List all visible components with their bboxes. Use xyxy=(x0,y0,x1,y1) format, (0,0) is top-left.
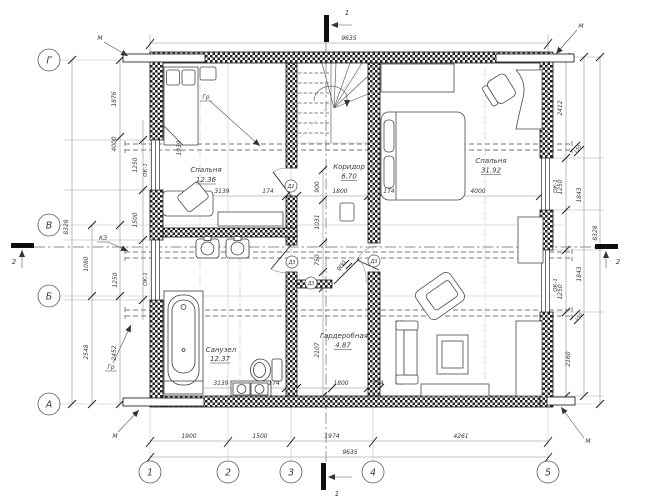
axis-col-5: 5 xyxy=(545,468,551,479)
washer-drum xyxy=(255,385,264,394)
floor-mark: Гр xyxy=(202,94,209,101)
dim-right-mid2: 1843 xyxy=(576,266,583,281)
rug-inner xyxy=(442,341,463,368)
room-name-bedroom-small: Спальня xyxy=(190,166,221,174)
axis-row-v: В xyxy=(46,221,53,232)
room-area-bedroom-small: 12.36 xyxy=(196,176,217,184)
room-area-wardrobe: 4.87 xyxy=(335,342,351,350)
dim-right-duct: 150 xyxy=(574,312,584,323)
dresser xyxy=(518,217,543,263)
dim-right-bottom: 2160 xyxy=(565,351,572,366)
dim-right-mid1: 1843 xyxy=(576,187,583,202)
dim-corridor-v3: 750 xyxy=(314,254,321,266)
axis-col-2: 2 xyxy=(225,468,231,479)
washbasin-tap xyxy=(204,237,211,241)
furniture-bedroom-big xyxy=(381,64,543,396)
room-name-bedroom-big: Спальня xyxy=(475,157,506,165)
dim-left-ba2: 2452 xyxy=(111,345,118,360)
sofa-back xyxy=(396,321,404,384)
dim-bottom-1: 1900 xyxy=(181,433,196,440)
section-2-bar-left xyxy=(11,243,34,248)
pillow xyxy=(167,70,180,85)
dim-right-window2: 1250 xyxy=(557,284,564,299)
tub-faucet xyxy=(181,305,186,310)
washbasin-bowl xyxy=(201,242,214,255)
shelf-unit xyxy=(381,64,454,92)
dim-corridor-v2: 1031 xyxy=(314,214,321,229)
axis-col-3: 3 xyxy=(288,468,294,479)
dim-ward-height: 2107 xyxy=(314,342,321,357)
floor-plan-canvas: Г В Б А 1 2 3 4 5 1 1 2 2 Спальня 12.36 … xyxy=(0,0,669,502)
dim-corridor-width: 1800 xyxy=(332,188,347,195)
dim-top-total: 9635 xyxy=(341,35,356,42)
pillow xyxy=(182,70,195,85)
dim-wall-t: 174 xyxy=(383,188,395,195)
furniture-corridor xyxy=(340,203,354,221)
nightstand xyxy=(200,67,216,80)
pillow xyxy=(384,156,394,188)
dim-left-pier-top: 1876 xyxy=(111,91,118,106)
room-area-bedroom-big: 31.92 xyxy=(481,167,502,175)
window-label: ОК-1 xyxy=(143,272,149,286)
dim-left-window1: 1250 xyxy=(132,157,139,172)
dim-left-gv: 4000 xyxy=(111,136,118,151)
staircase xyxy=(297,63,368,143)
dim-left-total: 8328 xyxy=(63,219,70,234)
desk xyxy=(516,70,542,129)
door-tag-d3: Д3 xyxy=(370,259,378,265)
low-cabinet xyxy=(421,384,489,396)
room-name-corridor: Коридор xyxy=(333,163,365,171)
axis-row-a: А xyxy=(45,400,53,411)
stair-down-arrow xyxy=(314,86,347,107)
washbasin-tap xyxy=(234,237,241,241)
dim-bottom-4: 4261 xyxy=(453,433,468,440)
sofa-armrest xyxy=(396,321,418,330)
axis-row-b: Б xyxy=(46,292,53,303)
dim-wall-t: 174 xyxy=(268,380,280,387)
floor-plan-drawing: Г В Б А 1 2 3 4 5 1 1 2 2 Спальня 12.36 … xyxy=(0,0,669,502)
section-1-bar-bottom xyxy=(321,463,326,490)
closet xyxy=(516,321,542,396)
dim-door-width: 900 xyxy=(336,259,349,272)
corner-mark: М xyxy=(97,35,103,42)
dim-wall-t: 174 xyxy=(262,188,274,195)
kz-mark: КЗ xyxy=(99,235,107,242)
room-name-bathroom: Санузел xyxy=(206,346,237,354)
dim-ward-width: 1800 xyxy=(333,380,348,387)
room-name-wardrobe: Гардеробная xyxy=(320,332,368,340)
door-tag-d3: Д3 xyxy=(288,260,296,266)
sofa-seat xyxy=(404,330,417,375)
dim-room1-width: 3139 xyxy=(214,188,229,195)
room-area-bathroom: 12.37 xyxy=(210,355,231,363)
sofa-armrest xyxy=(396,375,418,384)
axis-row-g: Г xyxy=(46,56,52,67)
corner-mark: М xyxy=(578,23,584,30)
cabinet xyxy=(340,203,354,221)
door-tag-d3: Д3 xyxy=(307,281,315,287)
dim-bottom-3: 1974 xyxy=(324,433,339,440)
section-2-label-left: 2 xyxy=(12,258,17,266)
dim-bed-length: 1939 xyxy=(176,140,183,155)
corner-mark: М xyxy=(112,433,118,440)
dim-left-pier-mid: 1500 xyxy=(132,212,139,227)
section-2-label-right: 2 xyxy=(616,258,621,266)
axis-col-4: 4 xyxy=(370,468,376,479)
axis-bubbles xyxy=(38,49,559,483)
toilet-bowl-inner xyxy=(254,363,266,378)
dim-left-vb: 1080 xyxy=(83,256,90,271)
tub-drain xyxy=(182,349,185,352)
dim-wall-t: 174 xyxy=(372,380,384,387)
dim-bottom-2: 1500 xyxy=(252,433,267,440)
washbasin-bowl xyxy=(231,242,244,255)
dim-right-total: 8328 xyxy=(592,225,599,240)
window-label: ОК-1 xyxy=(143,163,149,177)
washer-drum xyxy=(237,385,246,394)
dim-bath-width: 3139 xyxy=(213,380,228,387)
dim-right-top: 2412 xyxy=(557,100,564,115)
room-area-corridor: 6.70 xyxy=(341,173,357,181)
toilet-tank xyxy=(272,359,282,381)
dim-big-width: 4000 xyxy=(470,188,485,195)
section-1-label-top: 1 xyxy=(345,9,349,17)
axis-col-1: 1 xyxy=(147,468,153,479)
section-1-label-bottom: 1 xyxy=(335,490,339,498)
dim-left-ba: 2548 xyxy=(83,344,90,359)
bathtub-inner xyxy=(172,300,195,373)
dim-right-window1: 1250 xyxy=(557,179,564,194)
dim-corridor-v1: 900 xyxy=(314,181,321,193)
corner-mark: М xyxy=(585,438,591,445)
dim-left-window2: 1250 xyxy=(112,272,119,287)
dim-right-duct: 150 xyxy=(573,144,583,155)
dim-bottom-total: 9635 xyxy=(342,449,357,456)
pillow xyxy=(384,120,394,152)
section-1-bar-top xyxy=(324,15,329,42)
section-2-bar-right xyxy=(595,244,618,249)
door-tag-d2: Д2 xyxy=(287,184,295,190)
bench xyxy=(218,212,283,226)
floor-mark: Гр xyxy=(107,364,114,371)
